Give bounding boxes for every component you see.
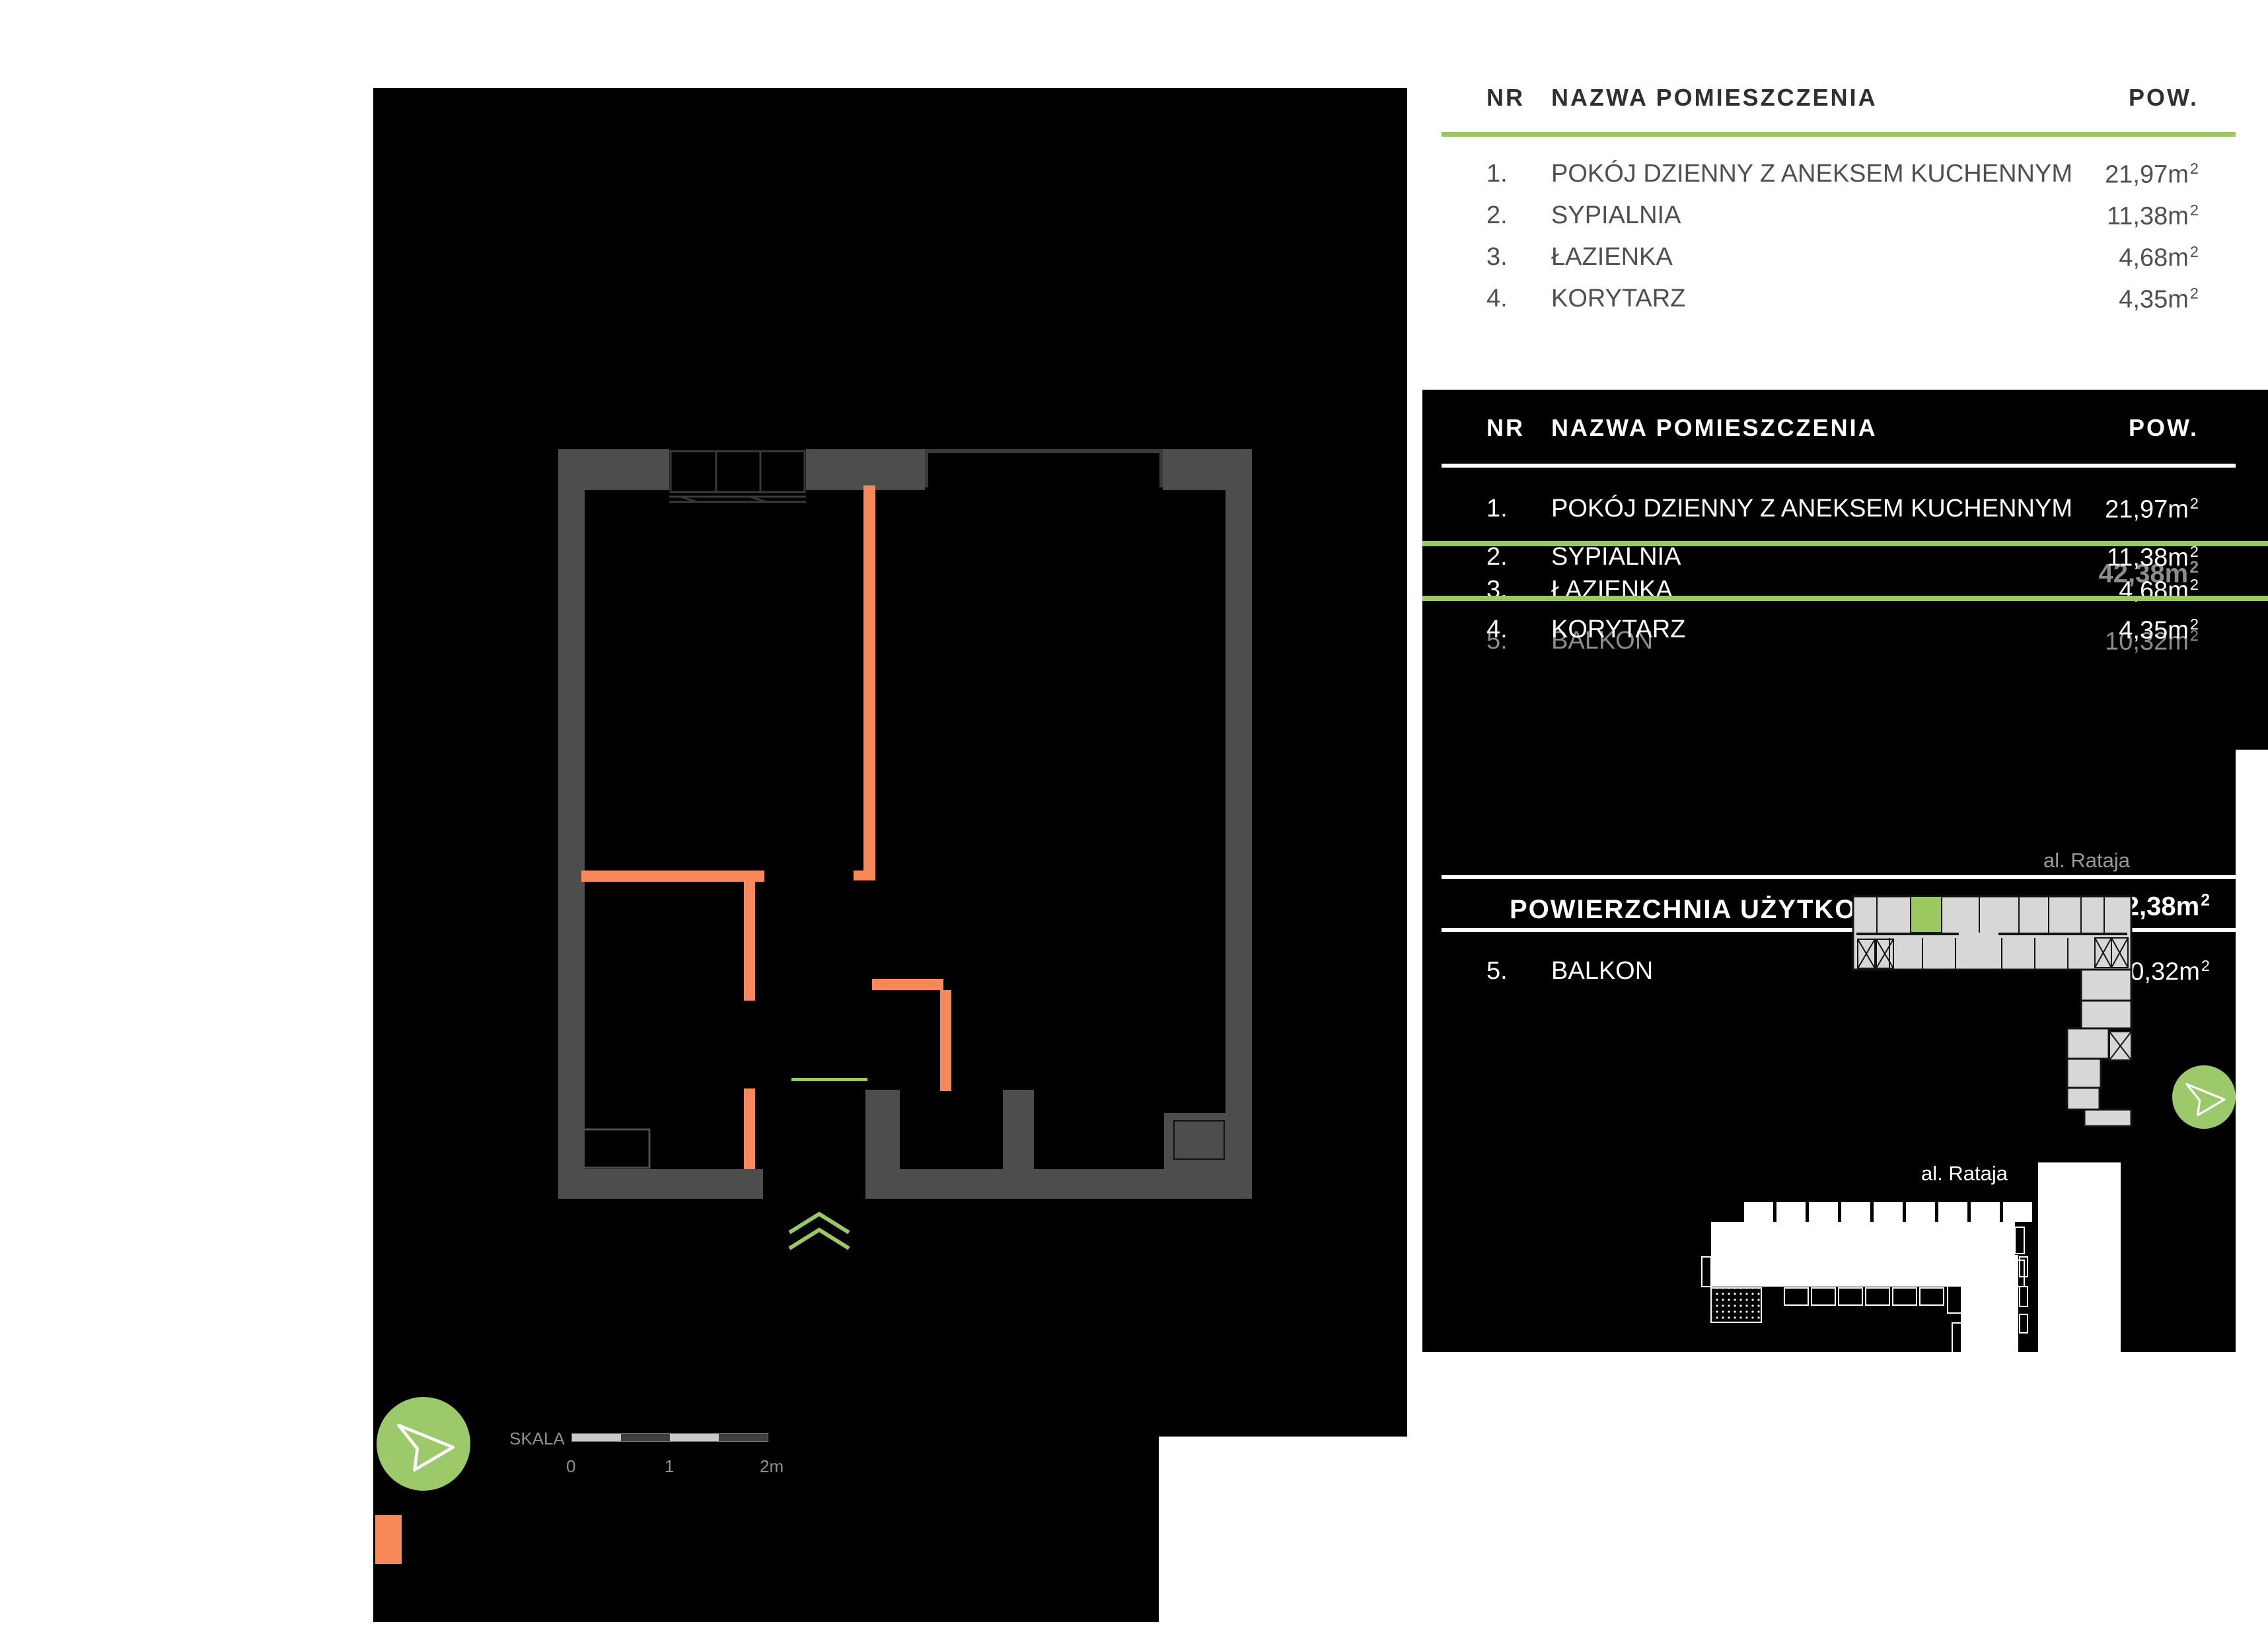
scale-bar-segment [719, 1434, 768, 1441]
superscript: 2 [2201, 892, 2210, 909]
apartment-card-page: NR NAZWA POMIESZCZENIA POW. 1. POKÓJ DZI… [0, 0, 2268, 1638]
superscript: 2 [2201, 957, 2210, 974]
glitch-line-upper [1422, 541, 2268, 546]
scale-tick: 2m [760, 1457, 784, 1476]
shaft-outline [580, 1129, 649, 1168]
orange-accent-swatch [375, 1515, 402, 1564]
usable-area-label: POWIERZCHNIA UŻYTKOWA [1510, 895, 1902, 924]
table-row-number: 1. [1486, 495, 1508, 523]
superscript: 2 [2190, 576, 2199, 593]
exterior-walls [558, 449, 1252, 1199]
compass-badge [2172, 1065, 2236, 1129]
table-row-name: KORYTARZ [1551, 616, 1685, 644]
dark-table-header-name: NAZWA POMIESZCZENIA [1551, 415, 1878, 441]
superscript: 2 [2190, 160, 2199, 177]
table-row-name: POKÓJ DZIENNY Z ANEKSEM KUCHENNYM [1551, 495, 2072, 523]
door-swing-line [791, 1078, 867, 1081]
scale-tick: 0 [566, 1457, 575, 1476]
table-row-number: 2. [1486, 202, 1508, 230]
street-label-lower: al. Rataja [1921, 1162, 2008, 1185]
site-plan-location-map [1850, 892, 2137, 1129]
superscript: 2 [2190, 495, 2199, 512]
table-row-number: 2. [1486, 544, 1508, 571]
light-table-header-name: NAZWA POMIESZCZENIA [1551, 85, 1878, 111]
light-table-underline [1442, 132, 2236, 137]
window-symbol [669, 451, 806, 502]
entrance-chevron-icon [789, 1214, 849, 1248]
staircase-symbol [2109, 1032, 2131, 1060]
scale-bar-segment [670, 1434, 719, 1441]
scale-tick: 1 [665, 1457, 674, 1476]
highlighted-partition-walls [581, 485, 951, 1169]
street-label-upper: al. Rataja [2043, 849, 2130, 872]
floor-plan-drawing [558, 449, 1252, 1252]
table-row-area: 11,38m2 [2107, 544, 2199, 572]
table-row-area: 4,35m2 [2119, 616, 2199, 645]
superscript: 2 [2190, 285, 2199, 302]
table-row-name: SYPIALNIA [1551, 202, 1681, 230]
table-row-number: 4. [1486, 285, 1508, 313]
highlighted-unit-marker [1911, 896, 1942, 933]
light-table-header-nr: NR [1486, 85, 1525, 111]
scale-bar [572, 1434, 768, 1441]
glitch-line-lower [1422, 596, 2268, 601]
road-strip [2038, 1162, 2121, 1353]
table-row-name: ŁAZIENKA [1551, 244, 1673, 271]
table-row-number: 3. [1486, 244, 1508, 271]
dark-table-header-area: POW. [2129, 415, 2199, 441]
table-row-area: 4,35m2 [2119, 285, 2199, 314]
balcony-row-number: 5. [1486, 958, 1508, 985]
dark-table-header-nr: NR [1486, 415, 1525, 441]
table-row-area: 21,97m2 [2105, 495, 2199, 524]
scale-label: SKALA [509, 1429, 565, 1448]
site-plan-inverse-map [1691, 1161, 2268, 1353]
table-row-name: SYPIALNIA [1551, 544, 1681, 571]
table-row-area: 21,97m2 [2105, 160, 2199, 189]
table-row-name: POKÓJ DZIENNY Z ANEKSEM KUCHENNYM [1551, 160, 2072, 188]
table-row-name: KORYTARZ [1551, 285, 1685, 313]
hatched-area [1711, 1288, 1761, 1322]
north-arrow-icon [389, 1409, 458, 1478]
summary-top-rule [1442, 875, 2236, 879]
compass-badge [377, 1397, 470, 1491]
table-row-area: 4,68m2 [2119, 244, 2199, 272]
courtyard-area [1961, 1255, 2018, 1353]
superscript: 2 [2190, 201, 2199, 219]
light-table-header-area: POW. [2129, 85, 2199, 111]
superscript: 2 [2190, 243, 2199, 260]
table-row-number: 4. [1486, 616, 1508, 644]
superscript: 2 [2190, 616, 2199, 633]
table-row-number: 1. [1486, 160, 1508, 188]
balcony-row-name: BALKON [1551, 958, 1653, 985]
scale-bar-segment [621, 1434, 670, 1441]
north-arrow-icon [2180, 1073, 2228, 1121]
table-row-area: 11,38m2 [2107, 202, 2199, 231]
balcony-row [1744, 1202, 2032, 1222]
dark-table-underline [1442, 464, 2236, 468]
window-symbol [925, 449, 1163, 487]
scale-bar-segment [572, 1434, 621, 1441]
unit-label: m [2168, 161, 2189, 189]
